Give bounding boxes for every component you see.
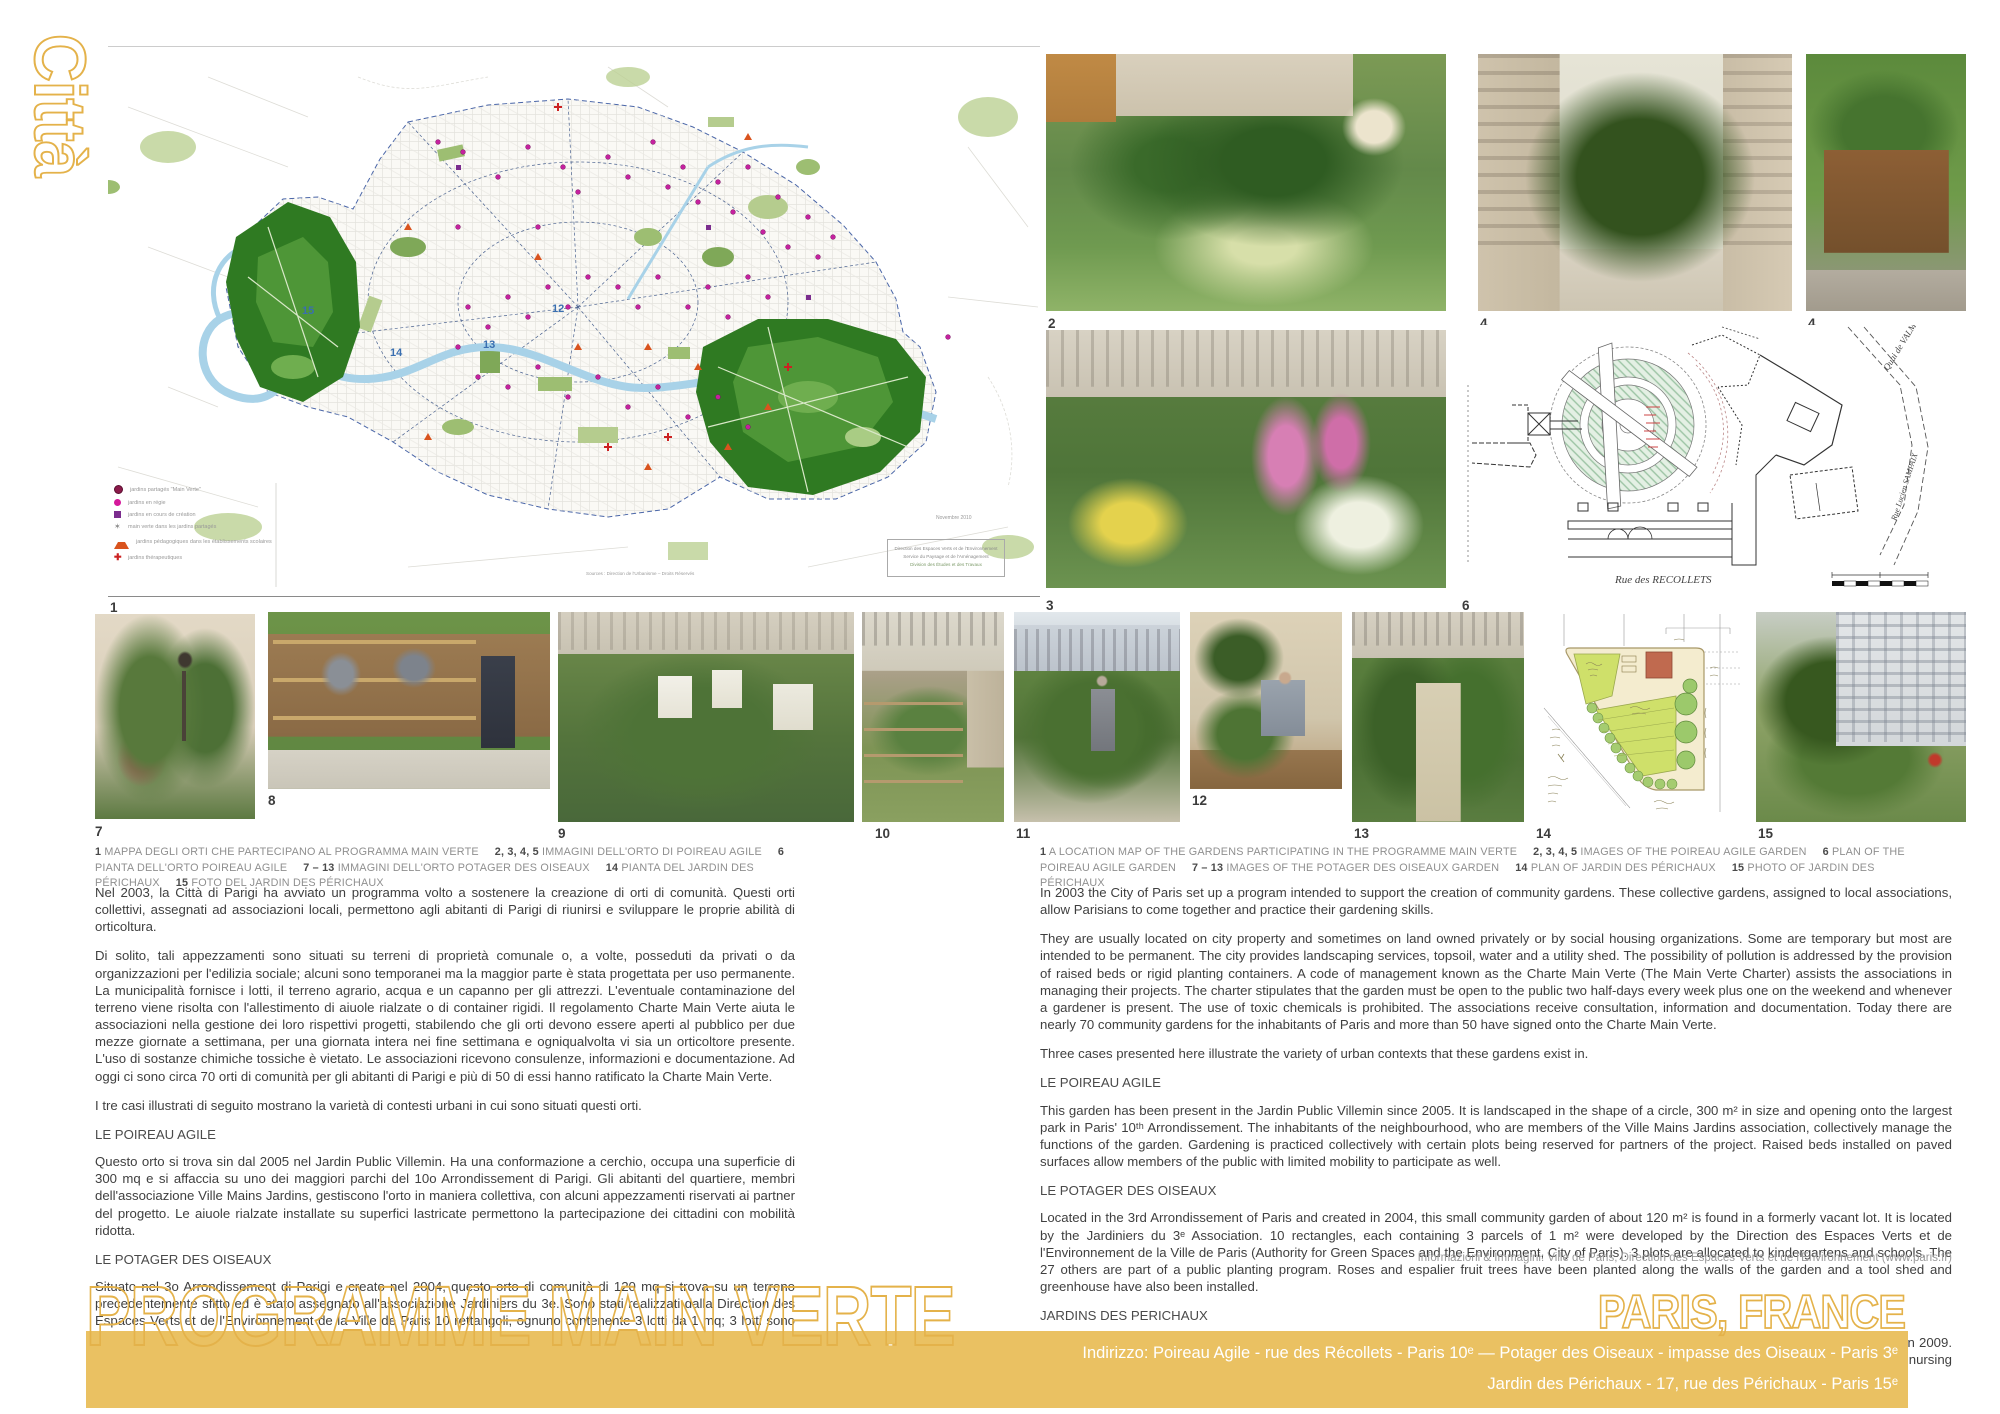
figure-number-11: 11 — [1016, 826, 1030, 841]
caption-segment: 14 PLAN OF JARDIN DES PÉRICHAUX — [1515, 862, 1716, 874]
location-title: PARIS, FRANCE — [1598, 1284, 1905, 1339]
district-label-14: 14 — [390, 347, 402, 359]
plan14-svg — [1534, 612, 1746, 822]
photo-courtyard-trees — [1478, 54, 1792, 311]
figure-number-7: 7 — [95, 824, 103, 839]
legend-label: jardins en cours de création — [128, 512, 196, 518]
district-label-15: 15 — [302, 305, 314, 317]
dot-magenta-icon — [114, 499, 121, 506]
caption-segment: 2, 3, 4, 5 IMMAGINI DELL'ORTO DI POIREAU… — [495, 846, 762, 858]
credits-line: Informazioni & Immagini: Ville de Paris,… — [1040, 1252, 1952, 1264]
section-heading: LE POIREAU AGILE — [1040, 1074, 1952, 1091]
district-label-12: 12 — [552, 303, 564, 315]
map-credit-line2: Service du Paysage et de l'Aménagement — [888, 553, 1004, 561]
figure-number-6: 6 — [1462, 598, 1470, 613]
legend-row: jardins en régie — [114, 499, 274, 506]
section-heading: LE POTAGER DES OISEAUX — [1040, 1182, 1952, 1199]
legend-row: jardins pédagogiques dans les établissem… — [114, 535, 274, 549]
map-legend: jardins partagés "Main Verte"jardins en … — [114, 485, 274, 566]
legend-label: main verte dans les jardins partagés — [128, 524, 216, 530]
plan-poireau-agile: Rue des RECOLLETS Quai de VALMY Rue Luci… — [1460, 325, 1966, 593]
plan6-svg: Rue des RECOLLETS Quai de VALMY Rue Luci… — [1460, 325, 1966, 593]
figure-number-15: 15 — [1758, 826, 1773, 841]
caption-segment: 1 A LOCATION MAP OF THE GARDENS PARTICIP… — [1040, 846, 1517, 858]
dot-maroon-icon — [114, 485, 123, 494]
section-heading: LE POTAGER DES OISEAUX — [95, 1251, 795, 1268]
legend-label: jardins partagés "Main Verte" — [130, 487, 201, 493]
map-credit-line1: Direction des Espaces Verts et de l'Envi… — [888, 545, 1004, 553]
legend-row: jardins partagés "Main Verte" — [114, 485, 274, 494]
map-date: Novembre 2010 — [936, 515, 972, 521]
photo-poireau-agile-garden — [1046, 54, 1446, 311]
paragraph: In 2003 the City of Paris set up a progr… — [1040, 884, 1952, 918]
legend-label: jardins thérapeutiques — [128, 555, 182, 561]
page-title: PROGRAMME MAIN VERTE — [86, 1268, 955, 1365]
figure-number-3: 3 — [1046, 598, 1054, 613]
map-credit-box: Direction des Espaces Verts et de l'Envi… — [887, 539, 1005, 577]
plan-jardin-des-perichaux — [1534, 612, 1746, 822]
figure-number-8: 8 — [268, 793, 276, 808]
photo-courtyard-garden — [862, 612, 1004, 822]
figure-number-9: 9 — [558, 826, 566, 841]
photo-flower-garden — [1046, 330, 1446, 588]
caption-segment: 2, 3, 4, 5 IMAGES OF THE POIREAU AGILE G… — [1533, 846, 1806, 858]
photo-raised-beds-people — [268, 612, 550, 789]
cross-red-icon: ✚ — [114, 554, 121, 561]
section-heading: LE POIREAU AGILE — [95, 1126, 795, 1143]
square-purple-icon — [114, 511, 121, 518]
poster-board: Città — [0, 0, 2000, 1414]
photo-wooden-planter — [1806, 54, 1966, 311]
photo-gardener-woman — [1014, 612, 1180, 822]
photo-garden-path — [1352, 612, 1524, 822]
legend-label: jardins en régie — [128, 500, 166, 506]
figure-number-1: 1 — [110, 600, 118, 615]
paragraph: Three cases presented here illustrate th… — [1040, 1045, 1952, 1062]
legend-row: ✚jardins thérapeutiques — [114, 554, 274, 561]
map-credit-line3: Division des Études et des Travaux — [888, 561, 1004, 569]
paragraph: I tre casi illustrati di seguito mostran… — [95, 1097, 795, 1114]
figure-number-10: 10 — [875, 826, 890, 841]
legend-row: jardins en cours de création — [114, 511, 274, 518]
caption-segment: 1 MAPPA DEGLI ORTI CHE PARTECIPANO AL PR… — [95, 846, 479, 858]
figure-number-2: 2 — [1048, 316, 1056, 331]
figure-number-14: 14 — [1536, 826, 1551, 841]
paragraph: This garden has been present in the Jard… — [1040, 1102, 1952, 1171]
figure-number-13: 13 — [1354, 826, 1369, 841]
paragraph: Questo orto si trova sin dal 2005 nel Ja… — [95, 1153, 795, 1239]
photo-garden-signs — [558, 612, 854, 822]
legend-row: ✶main verte dans les jardins partagés — [114, 523, 274, 530]
star-gray-icon: ✶ — [114, 523, 121, 530]
plan6-street-bottom: Rue des RECOLLETS — [1614, 574, 1712, 586]
photo-garden-wall-lamp — [95, 614, 255, 819]
paris-gardens-map: jardins partagés "Main Verte"jardins en … — [108, 46, 1040, 597]
photo-gardener-crouching — [1190, 612, 1342, 789]
title-dash: - — [888, 1336, 893, 1353]
address-line-2: Jardin des Périchaux - 17, rue des Péric… — [86, 1363, 1898, 1394]
figure-number-12: 12 — [1192, 793, 1207, 808]
triangle-red-icon — [114, 535, 129, 549]
paragraph: Nel 2003, la Città di Parigi ha avviato … — [95, 884, 795, 935]
caption-segment: 7 – 13 IMMAGINI DELL'ORTO POTAGER DES OI… — [303, 862, 589, 874]
paragraph: They are usually located on city propert… — [1040, 930, 1952, 1033]
kicker-citta: Città — [18, 34, 100, 177]
photo-highrise-garden — [1756, 612, 1966, 822]
map-sources: Sources : Direction de l'Urbanisme – Dro… — [586, 571, 694, 576]
paragraph: Di solito, tali appezzamenti sono situat… — [95, 947, 795, 1084]
caption-segment: 7 – 13 IMAGES OF THE POTAGER DES OISEAUX… — [1192, 862, 1499, 874]
legend-label: jardins pédagogiques dans les établissem… — [136, 539, 272, 545]
district-label-13: 13 — [483, 339, 495, 351]
